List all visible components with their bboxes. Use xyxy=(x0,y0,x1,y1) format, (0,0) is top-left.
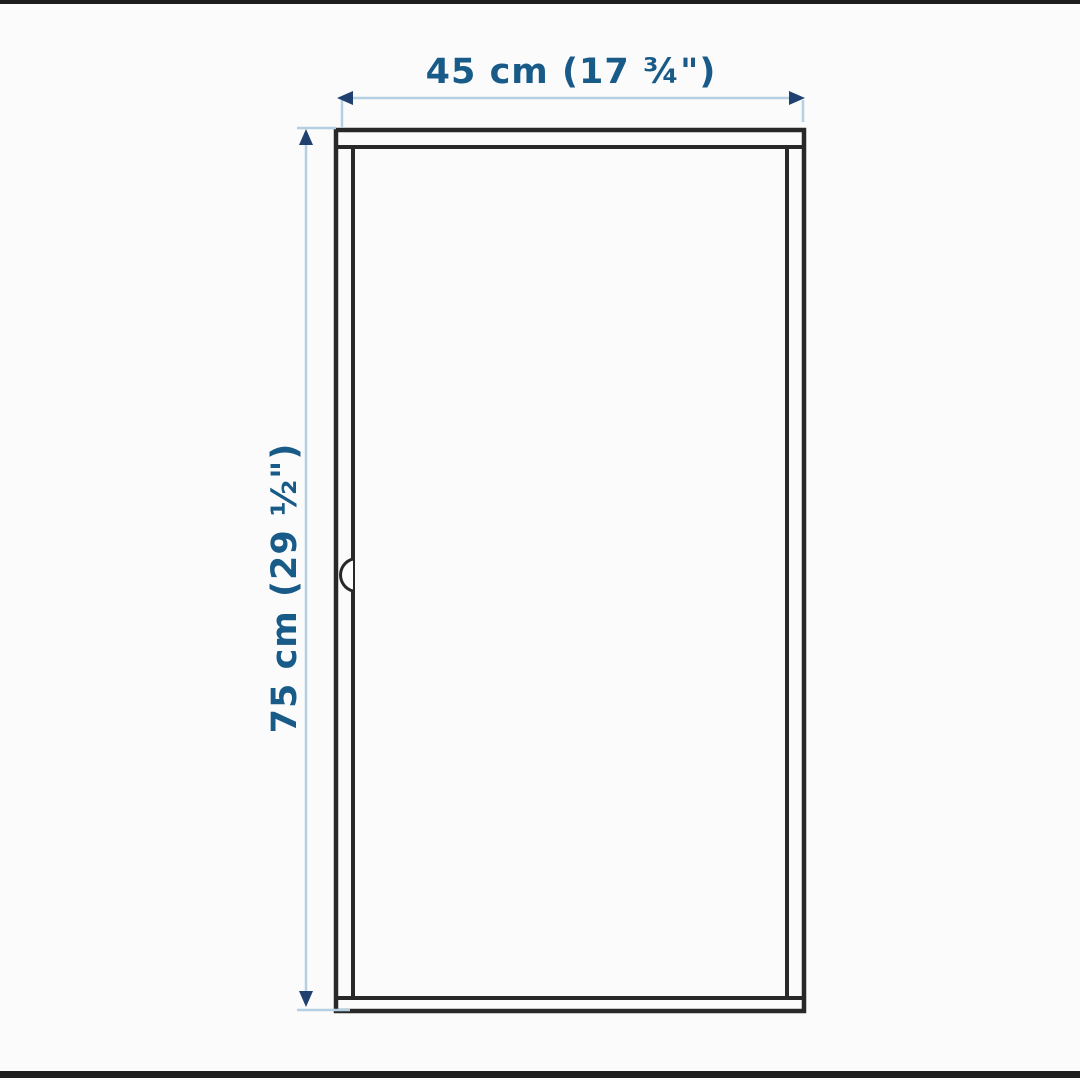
arrow-left-icon xyxy=(337,91,353,105)
arrow-up-icon xyxy=(299,129,313,145)
height-dimension-label: 75 cm (29 ½") xyxy=(265,408,305,768)
dimension-diagram: 45 cm (17 ¾") 75 cm (29 ½") xyxy=(0,0,1080,1080)
cabinet-outline xyxy=(336,130,804,1011)
door-handle-notch xyxy=(341,559,353,591)
cabinet-frame xyxy=(336,130,804,1011)
width-dimension xyxy=(337,91,805,127)
width-dimension-label: 45 cm (17 ¾") xyxy=(336,52,806,92)
line-drawing xyxy=(0,0,1080,1080)
arrow-down-icon xyxy=(299,991,313,1007)
